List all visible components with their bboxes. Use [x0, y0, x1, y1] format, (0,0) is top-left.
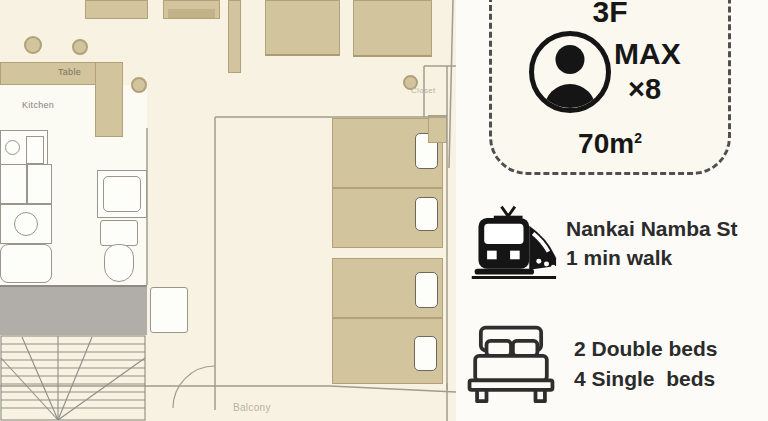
balcony-label: Balcony	[233, 402, 271, 413]
listing-infographic: Table Kitchen Closet Balcony	[0, 0, 768, 421]
station-info: Nankai Namba St1 min walk	[466, 204, 738, 282]
stool	[24, 36, 42, 54]
pillow	[414, 336, 437, 371]
bed-icon	[462, 322, 560, 405]
double-beds-count: 2 Double beds	[574, 334, 718, 364]
floor-number: 3F	[492, 0, 728, 29]
person-icon	[529, 31, 611, 113]
double-bed-1	[265, 0, 340, 56]
capacity-badge: 3F MAX ×8 70m2	[489, 0, 731, 175]
stove	[26, 136, 44, 164]
sink-bowl	[5, 140, 20, 155]
staircase	[1, 336, 145, 420]
max-count: ×8	[628, 73, 661, 106]
station-name: Nankai Namba St	[566, 214, 738, 243]
bathtub	[0, 244, 52, 283]
single-beds-count: 4 Single beds	[574, 364, 718, 394]
washer-drum	[14, 212, 38, 236]
double-bed-2	[353, 0, 432, 57]
cabinet-detail	[168, 9, 215, 18]
pillow	[415, 272, 438, 308]
station-text: Nankai Namba St1 min walk	[566, 214, 738, 272]
kitchen-counter-return	[95, 62, 123, 137]
corridor	[0, 285, 147, 335]
pillow	[415, 197, 438, 231]
vanity-divider	[26, 165, 28, 203]
stool	[72, 39, 88, 55]
person-head	[556, 45, 585, 74]
person-body	[544, 84, 596, 113]
toilet-tank	[100, 220, 138, 246]
shower-tray	[103, 176, 141, 212]
max-label: MAX	[614, 37, 681, 71]
kitchen-label: Kitchen	[22, 100, 54, 110]
floor-area: 70m2	[492, 128, 728, 160]
toilet-bowl	[104, 244, 134, 282]
table-label: Table	[58, 67, 81, 77]
bedding-text: 2 Double beds4 Single beds	[574, 334, 718, 394]
station-walk-time: 1 min walk	[566, 243, 738, 272]
landing-closet	[150, 287, 188, 333]
area-superscript: 2	[634, 130, 642, 146]
stool	[131, 77, 147, 93]
cabinet-top-left	[85, 0, 148, 19]
floor-plan: Table Kitchen Closet Balcony	[0, 0, 456, 421]
area-value: 70m	[578, 128, 634, 159]
bedding-info: 2 Double beds4 Single beds	[462, 322, 718, 405]
closet-shelf	[428, 115, 447, 143]
partition-wall	[228, 0, 241, 73]
train-icon	[466, 204, 558, 282]
closet-label: Closet	[411, 86, 435, 95]
